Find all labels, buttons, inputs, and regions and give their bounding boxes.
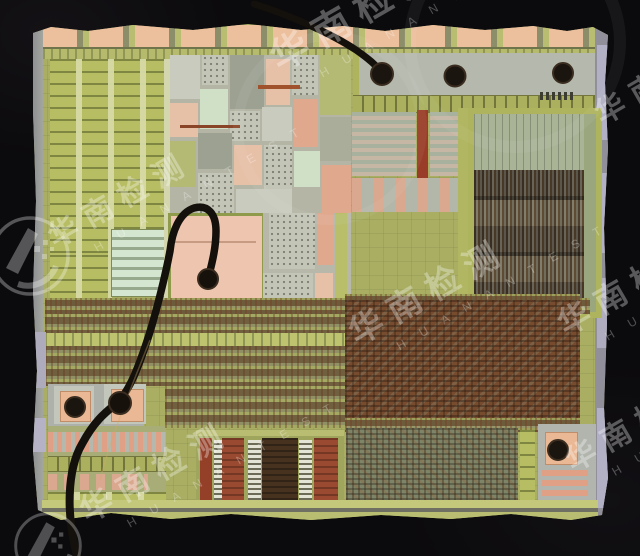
circuit-tile [322,165,351,213]
circuit-tile [262,107,292,141]
rom-stripe-column [248,440,261,502]
watermark-en: H U A N A N T E S T [602,211,640,344]
circuit-tile [170,103,198,137]
bond-pad [111,389,144,422]
rom-red-column [200,438,212,502]
array-vertical-rail [458,108,468,308]
die-marking [540,92,574,100]
rom-rail [196,430,344,436]
comb-structure [48,432,166,452]
circuit-tile [269,213,315,269]
bond-pad [545,432,578,465]
edge-lavender-block [33,332,46,388]
circuit-tile [264,145,292,189]
circuit-tile [266,59,290,105]
pad-split-line [171,241,256,243]
circuit-tile [317,213,333,265]
rom-stripe-column [299,440,312,502]
watermark-en: H U A N A N T E S T [609,346,640,479]
edge-lavender-block [33,418,46,452]
edge-pad [597,408,608,508]
circuit-tile [200,89,228,129]
circuit-tile [170,55,200,99]
circuit-tile [320,55,351,115]
circuit-tile [294,151,320,187]
metal-trace [258,85,300,89]
ladder-column [520,430,535,510]
logo-watermark [16,514,81,556]
logic-rows [45,314,350,386]
metal-trace [180,125,240,128]
rom-red-column [314,438,338,502]
logic-rows [165,386,345,428]
capacitor-array [50,59,164,255]
dense-logic-block [345,300,580,422]
array-stripe-section [474,170,584,300]
memory-array-block [468,108,602,318]
rom-stripe-column [214,440,222,500]
comb-structure [542,470,588,500]
circuit-tile [320,117,351,161]
rom-core [262,438,298,504]
circuit-tile [294,99,318,147]
stripe-bank [352,112,416,176]
circuit-tile [198,173,234,213]
red-bar [417,110,428,182]
top-pad-row [43,25,595,49]
circuit-tile [234,145,262,185]
circuit-tile [230,55,264,109]
brick-row [48,456,166,472]
circuit-tile [236,189,292,213]
rom-red-column [222,438,244,502]
die-bottom-edge [42,500,598,520]
circuit-tile [198,133,232,169]
ic-die [33,23,608,520]
circuit-tile [170,141,196,187]
die-photo: 华南检测 H U A N A N T E S T 华南检测 H U A N A … [0,0,640,556]
horizontal-bus [45,333,345,346]
array-top-section [474,114,584,170]
pink-cell-row [48,474,148,490]
circuit-tile [292,55,318,95]
analog-block-region [170,55,351,213]
bond-pad [60,391,91,422]
circuit-tile [202,55,228,85]
